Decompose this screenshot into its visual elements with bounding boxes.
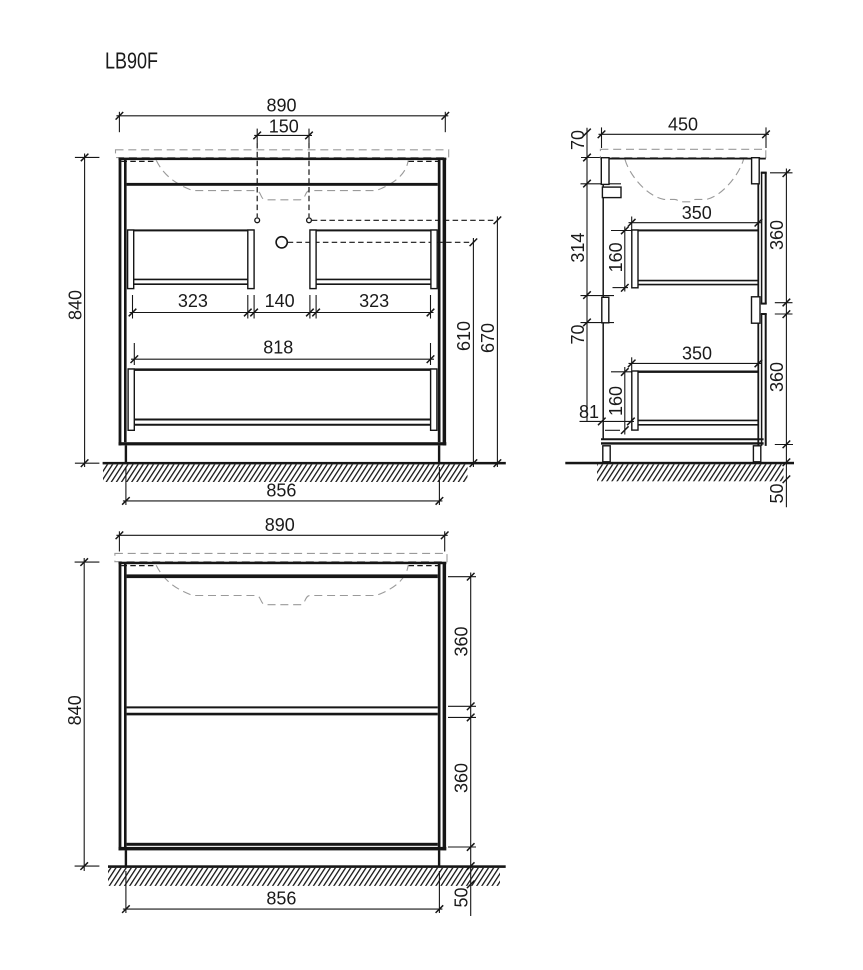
svg-text:160: 160 [606,242,626,272]
svg-text:610: 610 [454,321,474,351]
svg-text:50: 50 [767,483,787,503]
svg-text:81: 81 [579,402,599,422]
svg-text:360: 360 [767,362,787,392]
svg-text:160: 160 [606,386,626,416]
svg-text:670: 670 [478,323,498,353]
svg-text:LB90F: LB90F [105,48,158,74]
svg-text:323: 323 [359,291,389,311]
svg-text:70: 70 [568,324,588,344]
svg-text:840: 840 [65,695,85,725]
svg-text:360: 360 [767,220,787,250]
svg-text:450: 450 [668,114,698,134]
svg-text:890: 890 [265,515,295,535]
svg-text:350: 350 [682,344,712,364]
svg-text:818: 818 [263,338,293,358]
svg-text:50: 50 [452,887,472,907]
svg-text:856: 856 [266,889,296,909]
svg-text:350: 350 [682,203,712,223]
svg-text:856: 856 [266,480,296,500]
svg-text:890: 890 [266,95,296,115]
svg-text:314: 314 [568,233,588,263]
svg-text:360: 360 [452,763,472,793]
svg-text:150: 150 [269,116,299,136]
svg-text:70: 70 [568,130,588,150]
svg-text:140: 140 [265,291,295,311]
svg-text:360: 360 [452,626,472,656]
svg-text:840: 840 [65,290,85,320]
svg-text:323: 323 [178,291,208,311]
